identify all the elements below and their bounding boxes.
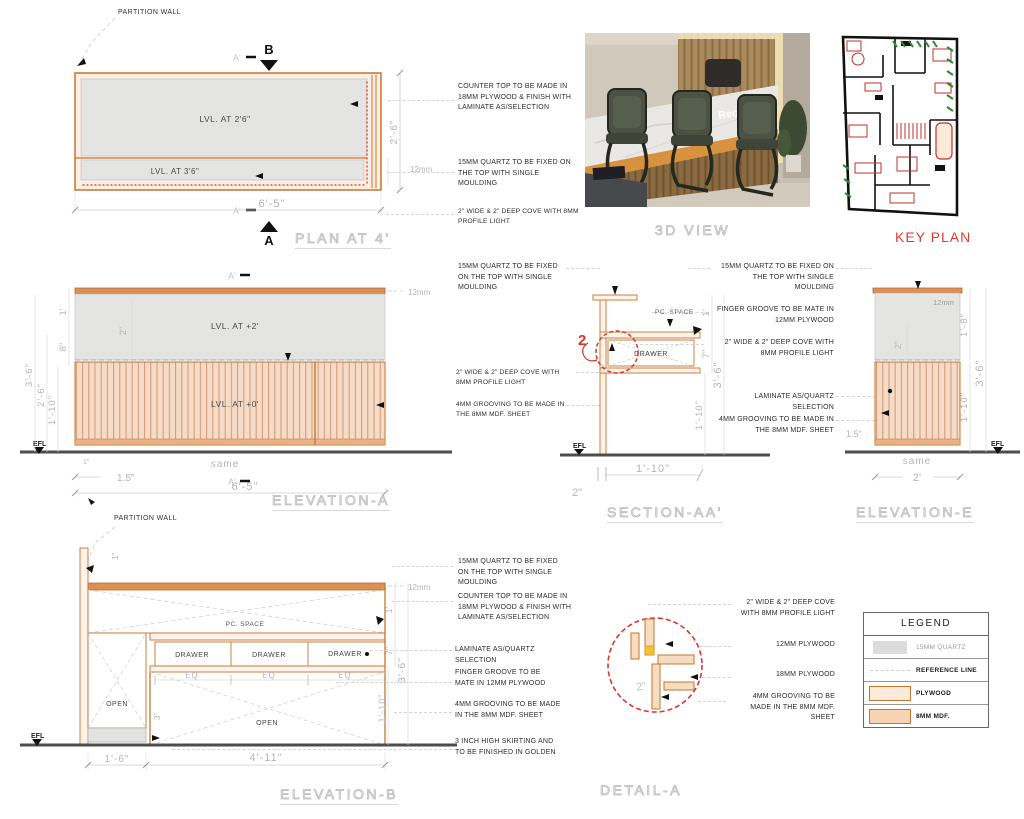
skirting [88, 728, 146, 742]
base-strip [75, 439, 385, 445]
section-marker-b: B [264, 42, 273, 57]
plan-depth-dim: 2'-6" [389, 120, 400, 145]
detail-a-title: DETAIL-A [600, 782, 682, 798]
reference-line-swatch [870, 670, 910, 671]
elevation-a-title: ELEVATION-A [272, 492, 390, 511]
arrow-marker [88, 498, 95, 505]
leader [392, 601, 453, 602]
elev-e-width-dim: 2' [913, 472, 921, 484]
elev-a-lvl-lower: LVL. AT +0' [211, 399, 259, 409]
section-marker-a: A [264, 233, 274, 248]
elev-e-12mm: 12mm [933, 298, 954, 307]
leader [648, 604, 731, 605]
dim-1in: 1" [111, 553, 120, 560]
leader [698, 701, 726, 702]
callout-detail-cove: 2" WIDE & 2" DEEP COVE WITH 8MM PROFILE … [735, 598, 835, 619]
arrow-marker [667, 319, 673, 327]
drawer-label-3: DRAWER [328, 651, 362, 658]
callout-quartz-mid: 15MM QUARTZ TO BE FIXED ON THE TOP WITH … [458, 262, 570, 294]
dim-width-1-10: 1'-10" [636, 463, 670, 475]
legend-row-quartz: 15MM QUARTZ [864, 636, 988, 659]
callout-cove-mid: 2" WIDE & 2" DEEP COVE WITH 8MM PROFILE … [456, 368, 576, 388]
lower-horizontal [664, 682, 694, 690]
callout-detail-ply12: 12MM PLYWOOD [735, 640, 835, 651]
callout-detail-ply18: 18MM PLYWOOD [735, 670, 835, 681]
dim-4-11: 4'-11" [249, 752, 282, 764]
legend-row-reference-line: REFERENCE LINE [864, 659, 988, 682]
legend-label: 8MM MDF. [916, 713, 988, 720]
dim-1-5in: 1.5" [117, 473, 135, 484]
callout-grooving-right: 4MM GROOVING TO BE MADE IN THE 8MM MDF. … [710, 415, 834, 436]
drawer-label-1: DRAWER [175, 652, 209, 659]
callout-detail-grooving: 4MM GROOVING TO BE MADE IN THE 8MM MDF. … [730, 692, 835, 724]
dim-7in: 7" [384, 647, 394, 655]
leader [652, 312, 708, 313]
callout-finger-right: FINGER GROOVE TO BE MATE IN 12MM PLYWOOD [712, 305, 834, 326]
plan-section-line-label-top: A' [233, 53, 241, 63]
dim-1-10: 1'-10" [47, 395, 58, 425]
counter-slab [600, 332, 700, 338]
drawer-label-2: DRAWER [252, 652, 286, 659]
dim-2in: 2" [118, 327, 128, 335]
elevation-e-drawing: 12mm 2" EFL 1'-8" 1'-10" 3'-6" 1.5" same… [845, 255, 1024, 507]
mdf-vertical [652, 664, 660, 709]
handle-dot [888, 389, 892, 393]
leader [640, 344, 704, 345]
leader [388, 172, 454, 173]
legend-title: LEGEND [864, 613, 988, 636]
plan-lvl-upper-label: LVL. AT 2'6" [199, 114, 250, 124]
dim-1in: 1" [83, 459, 90, 466]
elevation-a-drawing: A' LVL. AT +2' LVL. AT +0' EFL 3'-6" 2'-… [20, 255, 460, 507]
leader [370, 650, 452, 651]
arrow-marker [665, 641, 673, 647]
eq-label-3: EQ [338, 671, 352, 680]
dim-1-10: 1'-10" [694, 400, 705, 430]
leader [688, 268, 710, 269]
dim-same: same [903, 456, 931, 467]
leader [172, 749, 452, 750]
dim-3-6: 3'-6" [712, 362, 724, 389]
profile-light [645, 646, 654, 655]
callout-cove-right: 2" WIDE & 2" DEEP COVE WITH 8MM PROFILE … [708, 338, 834, 359]
key-plan-title: KEY PLAN [895, 229, 971, 245]
partition-wall [80, 548, 88, 745]
detail-a-drawing: 2" [595, 585, 740, 730]
back-panel [600, 300, 606, 455]
plan-section-line-label-bottom: A' [233, 206, 241, 216]
efl-label: EFL [991, 441, 1005, 448]
drawer-shelf [150, 633, 385, 640]
legend-label: PLYWOOD [916, 690, 988, 697]
leader [336, 682, 452, 683]
section-aa-title: SECTION-AA' [607, 504, 723, 523]
laptop [593, 166, 626, 180]
leader [394, 712, 452, 713]
plan-quartz-lower [81, 160, 364, 180]
elevation-e-title: ELEVATION-E [856, 504, 974, 523]
arrow-marker [661, 694, 669, 700]
dim-1-5in: 1.5" [846, 429, 862, 439]
callout-quartz: 15MM QUARTZ TO BE FIXED ON THE TOP WITH … [458, 158, 572, 190]
legend-label: 15MM QUARTZ [916, 644, 988, 651]
slat-panel [875, 362, 960, 445]
section-marker-b-arrow [260, 60, 278, 71]
elev-a-lvl-upper: LVL. AT +2' [211, 321, 259, 331]
callout-grooving-bottom: 4MM GROOVING TO BE MADE IN THE 8MM MDF. … [455, 700, 567, 721]
base-strip [875, 439, 960, 445]
callout-skirting-bottom: 3 INCH HIGH SKIRTING AND TO BE FINISHED … [455, 737, 559, 758]
plan-title: PLAN AT 4' [295, 230, 391, 249]
quartz-top-strip [873, 288, 962, 293]
plywood-swatch [869, 686, 911, 701]
pc-space-label: PC. SPACE [226, 621, 265, 628]
callout-laminate-right: LAMINATE AS/QUARTZ SELECTION [712, 392, 834, 413]
eq-label-1: EQ [185, 671, 199, 680]
cove-profile [631, 619, 694, 709]
dim-3-6: 3'-6" [24, 363, 35, 387]
callout-grooving-mid: 4MM GROOVING TO BE MADE IN THE 8MM MDF. … [456, 400, 566, 420]
mdf-swatch [869, 709, 911, 724]
elev-a-width-dim: 6'-5" [232, 481, 259, 493]
efl-label: EFL [31, 733, 45, 740]
dim-8in: 8" [58, 343, 69, 352]
dim-1-6: 1'-6" [105, 754, 130, 765]
dim-1ft: 1' [58, 308, 69, 315]
plan-lvl-lower-label: LVL. AT 3'6" [151, 167, 200, 176]
leader [388, 100, 454, 101]
dim-2in: 2" [893, 341, 903, 349]
dim-1-10: 1'-10" [959, 392, 970, 422]
leader [386, 214, 454, 215]
callout-cove: 2" WIDE & 2" DEEP COVE WITH 8MM PROFILE … [458, 207, 580, 227]
elev-b-12mm: 12mm [408, 583, 431, 592]
arrow-marker [612, 286, 618, 295]
dim-3-6: 3'-6" [974, 360, 986, 387]
dim-1ft: 1' [384, 606, 394, 613]
efl-label: EFL [573, 443, 587, 450]
detail-dim-2in: 2" [635, 680, 647, 694]
detail-marker-2: 2 [578, 332, 586, 349]
quartz-swatch [873, 641, 907, 654]
elev-a-12mm: 12mm [408, 288, 431, 297]
3d-view-title: 3D VIEW [655, 222, 730, 238]
dim-1-10: 1'-10" [377, 694, 387, 723]
handle-dot [365, 652, 369, 656]
ply18-horizontal [658, 655, 694, 664]
legend-table: LEGEND 15MM QUARTZ REFERENCE LINE PLYWOO… [863, 612, 989, 728]
leader [702, 677, 731, 678]
leader [700, 646, 731, 647]
open-label-main: OPEN [256, 720, 278, 727]
callout-counter-bottom: COUNTER TOP TO BE MADE IN 18MM PLYWOOD &… [458, 592, 578, 624]
dim-2-6: 2'-6" [36, 383, 47, 407]
partition-arrow [77, 58, 86, 66]
legend-label: REFERENCE LINE [916, 667, 988, 674]
drawer-label: DRAWER [634, 351, 668, 358]
3d-view-photo: Reception [585, 33, 810, 207]
dim-1-8: 1'-8" [959, 313, 970, 337]
cove-light [678, 33, 778, 39]
drawing-sheet: PARTITION WALL LVL. AT 2'6" LVL. AT 3'6"… [0, 0, 1024, 819]
keyplan-car [936, 123, 952, 159]
office-chair [705, 59, 741, 87]
elevation-b-drawing: 1" 12mm PC. SPACE OPEN DRAWER DRAWER DRA… [20, 520, 465, 785]
elevation-b-title: ELEVATION-B [280, 786, 398, 805]
callout-quartz-bottom: 15MM QUARTZ TO BE FIXED ON THE TOP WITH … [458, 557, 570, 589]
dim-3in: 3" [153, 713, 162, 720]
key-plan [835, 25, 965, 230]
callout-counter-top: COUNTER TOP TO BE MADE IN 18MM PLYWOOD &… [458, 82, 576, 114]
dim-3-6: 3'-6" [396, 657, 408, 683]
partition-leader-line [80, 18, 115, 62]
callout-finger-bottom: FINGER GROOVE TO BE MATE IN 12MM PLYWOOD [455, 668, 557, 689]
quartz-top-strip [75, 288, 385, 294]
section-marker-a-arrow [260, 221, 278, 232]
dim-2in-bottom: 2" [572, 487, 582, 499]
top-shelf [593, 295, 637, 300]
plan-width-dim: 6'-5" [259, 198, 286, 210]
callout-quartz-right: 15MM QUARTZ TO BE FIXED ON THE TOP WITH … [712, 262, 834, 294]
arrow-marker [690, 674, 698, 680]
open-label-left: OPEN [106, 701, 128, 708]
arrow-marker [152, 735, 160, 741]
leader [392, 566, 453, 567]
dim-same: same [211, 459, 239, 470]
legend-row-mdf: 8MM MDF. [864, 705, 988, 727]
counter-top-strip [88, 583, 385, 590]
left-return [631, 633, 639, 659]
elev-a-section-label-top: A' [228, 271, 236, 281]
legend-row-plywood: PLYWOOD [864, 682, 988, 705]
eq-label-2: EQ [262, 671, 276, 680]
callout-laminate-bottom: LAMINATE AS/QUARTZ SELECTION [455, 645, 563, 666]
